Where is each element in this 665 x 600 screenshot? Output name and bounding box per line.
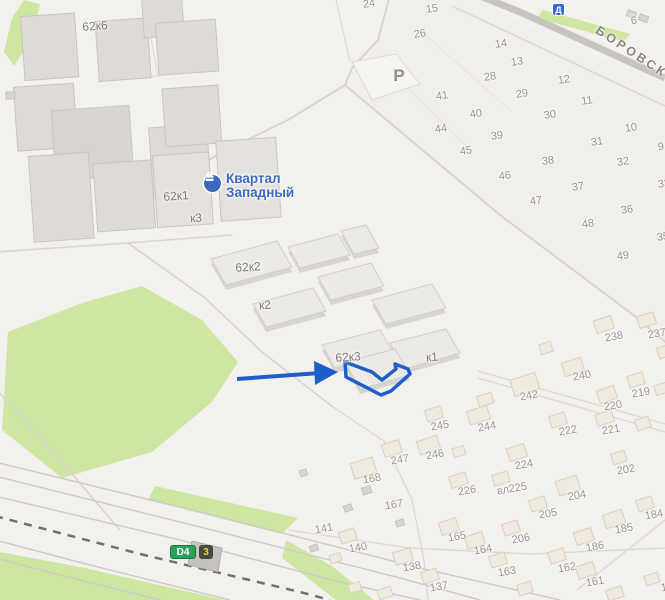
apartment-blocks — [8, 0, 282, 243]
district-area — [347, 0, 665, 340]
vehicle-icon — [626, 10, 637, 19]
map-canvas[interactable]: 62к662к1к362к2к262к3к1 24152661413281229… — [0, 0, 665, 600]
map-scene — [0, 0, 665, 600]
railway-platform — [188, 541, 222, 572]
vehicle-icon — [638, 14, 649, 23]
complex-buildings — [211, 225, 460, 394]
pointer-arrow-icon — [237, 361, 338, 385]
